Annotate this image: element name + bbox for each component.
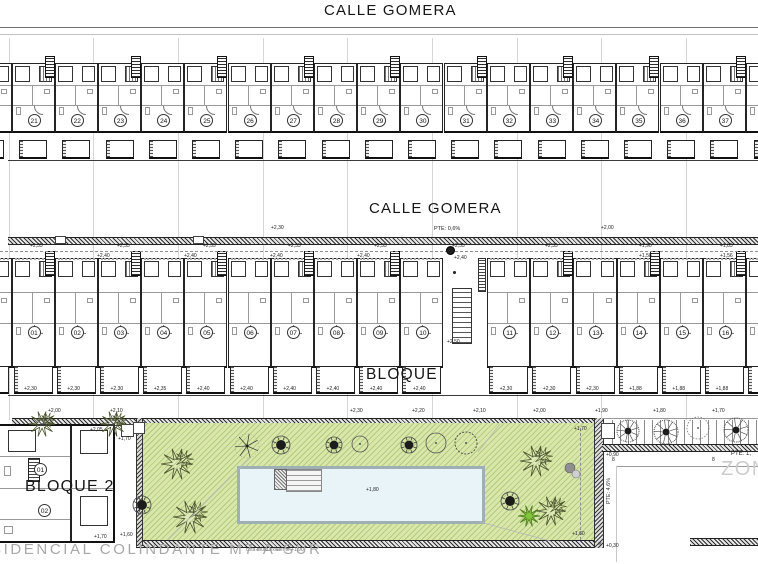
unit-03: 03 — [98, 258, 141, 368]
wall-line — [0, 105, 11, 106]
wall-line — [56, 323, 97, 324]
unit-23: 23 — [98, 63, 141, 133]
unit-28: 28 — [314, 63, 357, 133]
walkway-level: +2,20 — [412, 408, 425, 414]
room — [144, 261, 159, 277]
room — [403, 261, 418, 277]
unit-37: 37 — [703, 63, 746, 133]
wall-line — [401, 323, 442, 324]
patio: +1,88 — [705, 366, 744, 394]
wall-line — [358, 292, 399, 293]
patio-hedge — [317, 367, 320, 392]
room — [687, 261, 700, 277]
unit-number: 37 — [719, 114, 732, 127]
unit-13: 13 — [573, 258, 616, 368]
room — [749, 261, 758, 277]
unit-number: 12 — [546, 326, 559, 339]
wall-line — [507, 292, 508, 323]
wall-line — [204, 85, 205, 105]
fixture — [491, 327, 496, 335]
stair-shaft — [736, 56, 746, 78]
patio — [365, 140, 393, 159]
wall-line — [636, 85, 637, 105]
room — [490, 66, 505, 82]
fixture — [87, 89, 93, 94]
unit-number: 24 — [157, 114, 170, 127]
street-level-below: +2,35 — [203, 243, 216, 249]
bloque2-room-2 — [80, 430, 108, 454]
street-level-below: +2,35 — [288, 243, 301, 249]
bloque2-fixture-2 — [4, 526, 13, 534]
patio-hedge — [279, 141, 282, 157]
room — [514, 66, 527, 82]
room — [663, 66, 678, 82]
room — [576, 261, 591, 277]
fixture — [188, 327, 193, 335]
unit-16: 16 — [703, 258, 746, 368]
porch-dots — [231, 258, 268, 260]
unit-12: 12 — [530, 258, 573, 368]
garden-level: +1,70 — [118, 436, 131, 442]
patio-level-label: +2,35 — [154, 386, 167, 392]
wall-line — [204, 292, 205, 323]
wall-line — [723, 292, 724, 323]
room — [600, 66, 613, 82]
fixture — [275, 107, 280, 115]
wall-line — [0, 292, 11, 293]
unit-number: 16 — [719, 326, 732, 339]
wall-line — [99, 85, 140, 86]
room — [341, 261, 354, 277]
patio: +2,40 — [186, 366, 225, 394]
bloque1-label: BLOQUE 1 — [366, 366, 453, 384]
stair-shaft — [217, 56, 227, 78]
stair-shaft — [563, 56, 573, 78]
fixture — [621, 327, 626, 335]
room — [144, 66, 159, 82]
fixture — [361, 327, 366, 335]
fixture — [59, 327, 64, 335]
bloque2-unit-01-number: 01 — [34, 463, 47, 476]
wall-line — [13, 85, 54, 86]
unit-number: 36 — [676, 114, 689, 127]
fixture — [750, 327, 755, 335]
passage-shaft — [478, 258, 486, 292]
unit-02: 02 — [55, 258, 98, 368]
unit-15: 15 — [660, 258, 703, 368]
fixture — [44, 298, 50, 303]
wall-line — [445, 85, 486, 86]
patio — [0, 366, 9, 394]
bloque2-level: +1,70 — [94, 534, 107, 540]
fixture — [216, 298, 222, 303]
fixture — [389, 298, 395, 303]
room — [514, 261, 527, 277]
fixture — [577, 327, 582, 335]
swimming-pool: +1,80 — [237, 466, 485, 524]
wall-line — [747, 105, 758, 106]
porch-dots — [403, 258, 440, 260]
patio: +1,88 — [662, 366, 701, 394]
room — [706, 261, 721, 277]
building-line-level: +2,40 — [270, 253, 283, 259]
fixture — [735, 298, 741, 303]
wall-line — [661, 292, 702, 293]
wall-line — [248, 292, 249, 323]
room — [360, 66, 375, 82]
unit-36: 36 — [660, 63, 703, 133]
room — [15, 261, 30, 277]
fixture — [44, 89, 50, 94]
patio-hedge — [187, 367, 190, 392]
room — [619, 66, 634, 82]
unit-number: 06 — [244, 326, 257, 339]
patio-hedge — [150, 141, 153, 157]
fixture — [1, 89, 7, 94]
building-setback-line — [0, 251, 758, 252]
patio-hedge — [711, 141, 714, 157]
wall-line — [593, 85, 594, 105]
room — [101, 66, 116, 82]
fixture — [130, 298, 136, 303]
walkway-level: +2,00 — [48, 408, 61, 414]
patio — [322, 140, 350, 159]
pool-level-label: +1,80 — [366, 487, 379, 493]
wall-line — [618, 323, 659, 324]
wall-line — [185, 323, 226, 324]
unit-33: 33 — [530, 63, 573, 133]
walkway-level: +2,00 — [533, 408, 546, 414]
room — [601, 261, 614, 277]
bloque2-room-1 — [8, 430, 36, 452]
fixture — [303, 89, 309, 94]
fixture — [232, 107, 237, 115]
garden-corner-symbol-2 — [133, 422, 145, 434]
fixture — [562, 298, 568, 303]
unit-number: 30 — [416, 114, 429, 127]
stair-shaft — [736, 251, 746, 276]
unit-11: 11 — [487, 258, 530, 368]
patio-hedge — [539, 141, 542, 157]
passage-level-upper: +2,40 — [454, 255, 467, 261]
patio — [235, 140, 263, 159]
fixture — [275, 327, 280, 335]
room — [58, 261, 73, 277]
garden-level: +1,60 — [120, 532, 133, 538]
stair-shaft — [304, 251, 314, 276]
fixture — [130, 89, 136, 94]
wall-line — [291, 292, 292, 323]
wall-line — [118, 292, 119, 323]
street-slope-label: PTE: 0,6% — [434, 226, 460, 232]
fixture — [534, 107, 539, 115]
wall-line — [32, 292, 33, 323]
unit-07: 07 — [271, 258, 314, 368]
wall-line — [704, 85, 745, 86]
walkway-level: +1,80 — [653, 408, 666, 414]
patio: +2,30 — [576, 366, 615, 394]
patio — [408, 140, 436, 159]
wall-line — [661, 323, 702, 324]
patio-hedge — [495, 141, 498, 157]
wall-line — [574, 323, 615, 324]
section-mark: 8 — [712, 457, 715, 463]
wall-line — [229, 292, 270, 293]
ramp-level-bottom: +0,30 — [606, 543, 619, 549]
passage-stair — [452, 288, 472, 344]
stair-shaft — [45, 251, 55, 276]
unit-number: 29 — [373, 114, 386, 127]
unit-number: 07 — [287, 326, 300, 339]
patio — [754, 140, 758, 159]
room — [749, 66, 758, 82]
unit-08: 08 — [314, 258, 357, 368]
patio-hedge — [323, 141, 326, 157]
wall-line — [142, 323, 183, 324]
wall-line — [13, 323, 54, 324]
patio-hedge — [706, 367, 709, 392]
street-level-below: +2,35 — [374, 243, 387, 249]
patio: +1,88 — [619, 366, 658, 394]
street-edge-line-2 — [0, 34, 758, 35]
street-level-below: +1,90 — [639, 243, 652, 249]
bloque2-wall-h3 — [0, 519, 70, 520]
patio-hedge — [366, 141, 369, 157]
patio-level-label: +1,88 — [672, 386, 685, 392]
stair-shaft — [304, 56, 314, 78]
street-level-below: +2,35 — [30, 243, 43, 249]
wall-line — [56, 292, 97, 293]
patio-level-label: +2,40 — [413, 386, 426, 392]
patio-level-label: +2,30 — [111, 386, 124, 392]
building-line-level: +1,58 — [639, 253, 652, 259]
street-edge-line-1 — [0, 27, 758, 28]
wall-line — [291, 85, 292, 105]
wall-line — [420, 292, 421, 323]
parking-ticks — [612, 420, 758, 444]
unit-number: 05 — [200, 326, 213, 339]
stair-shaft — [390, 251, 400, 276]
unit-17: 17 — [746, 258, 758, 368]
porch-dots — [0, 258, 9, 260]
patio-hedge — [490, 367, 493, 392]
wall-line — [315, 323, 356, 324]
fixture — [562, 89, 568, 94]
porch-dots — [576, 258, 613, 260]
room — [231, 66, 246, 82]
wall-line — [0, 85, 11, 86]
fixture — [145, 107, 150, 115]
fixture — [735, 89, 741, 94]
wall-line — [401, 85, 442, 86]
unit-number: 13 — [589, 326, 602, 339]
room — [187, 66, 202, 82]
room — [706, 66, 721, 82]
wall-line — [229, 85, 270, 86]
patio-hedge — [58, 367, 61, 392]
unit-34: 34 — [573, 63, 616, 133]
porch-dots — [317, 258, 354, 260]
bloque1-passage — [444, 258, 487, 395]
fixture — [232, 327, 237, 335]
room — [447, 66, 462, 82]
fixture — [605, 89, 611, 94]
wall-line — [723, 85, 724, 105]
unit-25: 25 — [184, 63, 227, 133]
fixture — [620, 107, 625, 115]
unit-04: 04 — [141, 258, 184, 368]
fixture — [692, 89, 698, 94]
street-level-below: +2,35 — [545, 243, 558, 249]
unit-number: 27 — [287, 114, 300, 127]
bloque2-level: +2,05 — [90, 427, 103, 433]
patio-hedge — [625, 141, 628, 157]
wall-line — [593, 292, 594, 323]
fixture — [664, 107, 669, 115]
fixture — [346, 298, 352, 303]
wall-line — [574, 292, 615, 293]
fixture — [519, 298, 525, 303]
patio: +2,40 — [273, 366, 312, 394]
street-gate-1 — [55, 236, 66, 244]
fixture — [750, 107, 755, 115]
site-plan-drawing: CALLE GOMERA 212223242526272829303132333… — [0, 0, 758, 564]
wall-line — [142, 85, 183, 86]
bloque2-unit-02-number: 02 — [38, 504, 51, 517]
patio-hedge — [107, 141, 110, 157]
unit-number: 26 — [244, 114, 257, 127]
patio-hedge — [231, 367, 234, 392]
walkway-level: +1,90 — [595, 408, 608, 414]
wall-line — [118, 85, 119, 105]
unit-number: 25 — [200, 114, 213, 127]
patio-hedge — [668, 141, 671, 157]
room — [82, 261, 95, 277]
unit-edge — [0, 258, 12, 368]
stair-shaft — [45, 56, 55, 78]
patio — [149, 140, 177, 159]
room — [427, 261, 440, 277]
building-line-level: +2,40 — [97, 253, 110, 259]
unit-number: 03 — [114, 326, 127, 339]
stair-shaft — [131, 56, 141, 78]
patio-level-label: +2,30 — [24, 386, 37, 392]
patio-hedge — [582, 141, 585, 157]
unit-number: 28 — [330, 114, 343, 127]
wall-line — [56, 85, 97, 86]
wall-line — [550, 85, 551, 105]
wall-line — [531, 292, 572, 293]
unit-number: 32 — [503, 114, 516, 127]
street-level-above: +2,00 — [601, 225, 614, 231]
patio-hedge — [20, 141, 23, 157]
fixture — [145, 327, 150, 335]
ramp-slope-label: PTE: 4,6% — [606, 456, 612, 526]
patio-hedge — [755, 141, 758, 157]
building-line-level: +2,40 — [184, 253, 197, 259]
fixture — [318, 107, 323, 115]
patio-level-label: +1,88 — [716, 386, 729, 392]
patio-level-label: +2,40 — [283, 386, 296, 392]
patio-hedge — [409, 141, 412, 157]
patio-level-label: +2,30 — [67, 386, 80, 392]
street-level-below: +2,35 — [452, 243, 465, 249]
wall-line — [377, 292, 378, 323]
garden-level: +1,60 — [572, 531, 585, 537]
room — [82, 66, 95, 82]
unit-31: 31 — [444, 63, 487, 133]
wall-line — [13, 292, 54, 293]
wall-line — [531, 85, 572, 86]
porch-dots — [144, 258, 181, 260]
patio-level-label: +2,40 — [370, 386, 383, 392]
fixture — [476, 89, 482, 94]
garden-level: +1,70 — [574, 426, 587, 432]
wall-line — [229, 323, 270, 324]
patio — [192, 140, 220, 159]
unit-05: 05 — [184, 258, 227, 368]
patio-hedge — [749, 367, 752, 392]
room — [663, 261, 678, 277]
patio-hedge — [144, 367, 147, 392]
patio-hedge — [15, 367, 18, 392]
fixture — [318, 327, 323, 335]
patio: +2,30 — [57, 366, 96, 394]
wall-line — [420, 85, 421, 105]
porch-dots — [490, 258, 527, 260]
wall-line — [75, 85, 76, 105]
patio-hedge — [193, 141, 196, 157]
street-level-below: +1,85 — [720, 243, 733, 249]
patio — [0, 140, 4, 159]
wall-line — [704, 323, 745, 324]
passage-level-lower: +2,50 — [447, 339, 460, 345]
patio — [106, 140, 134, 159]
fixture — [577, 107, 582, 115]
wall-line — [315, 85, 356, 86]
patio — [581, 140, 609, 159]
unit-number: 08 — [330, 326, 343, 339]
wall-line — [401, 292, 442, 293]
wall-line — [550, 292, 551, 323]
fixture — [664, 327, 669, 335]
walkway-level: +2,10 — [473, 408, 486, 414]
wall-note: cota muro existente +1,90 — [246, 547, 304, 553]
street-name-top: CALLE GOMERA — [324, 2, 457, 19]
fixture — [432, 89, 438, 94]
patio — [667, 140, 695, 159]
stair-shaft — [563, 251, 573, 276]
bloque2-fixture-1 — [4, 466, 11, 476]
fixture — [260, 89, 266, 94]
fixture — [404, 107, 409, 115]
unit-10: 10 — [400, 258, 443, 368]
wall-line — [161, 85, 162, 105]
wall-line — [99, 323, 140, 324]
unit-01: 01 — [12, 258, 55, 368]
street-level-below: +2,35 — [117, 243, 130, 249]
patio-hedge — [236, 141, 239, 157]
wall-line — [334, 292, 335, 323]
wall-line — [377, 85, 378, 105]
stair-shaft — [649, 56, 659, 78]
patio-hedge — [274, 367, 277, 392]
unit-number: 09 — [373, 326, 386, 339]
fixture — [448, 107, 453, 115]
patio — [538, 140, 566, 159]
patio — [710, 140, 738, 159]
room — [490, 261, 505, 277]
